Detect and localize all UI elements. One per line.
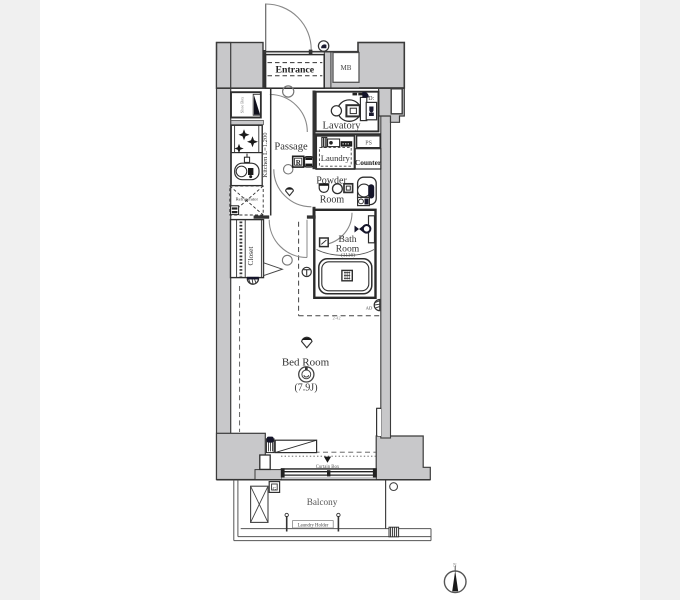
svg-text:PS: PS: [365, 140, 372, 146]
svg-text:Counter: Counter: [355, 158, 382, 167]
svg-text:Closet: Closet: [246, 246, 255, 266]
svg-text:Entrance: Entrance: [275, 64, 314, 75]
svg-text:Room: Room: [320, 194, 345, 205]
svg-text:Kitchen L=1.200: Kitchen L=1.200: [262, 132, 269, 178]
svg-text:D:: D:: [368, 96, 374, 102]
svg-text:Laundry Holder: Laundry Holder: [298, 523, 329, 528]
svg-text:G: G: [273, 487, 277, 492]
svg-text:N: N: [453, 563, 457, 568]
svg-text:MB: MB: [341, 64, 352, 72]
svg-text:AD: AD: [366, 306, 373, 311]
svg-text:Laundry: Laundry: [321, 153, 351, 163]
svg-text:Refrigerator: Refrigerator: [236, 197, 259, 202]
svg-text:2-42: 2-42: [332, 316, 340, 321]
svg-text:Lavatory: Lavatory: [323, 120, 362, 131]
svg-text:Shoe Box: Shoe Box: [240, 96, 245, 113]
svg-text:(7.9J): (7.9J): [294, 383, 317, 394]
svg-text:Balcony: Balcony: [307, 497, 338, 507]
svg-text:Passage: Passage: [274, 142, 308, 153]
